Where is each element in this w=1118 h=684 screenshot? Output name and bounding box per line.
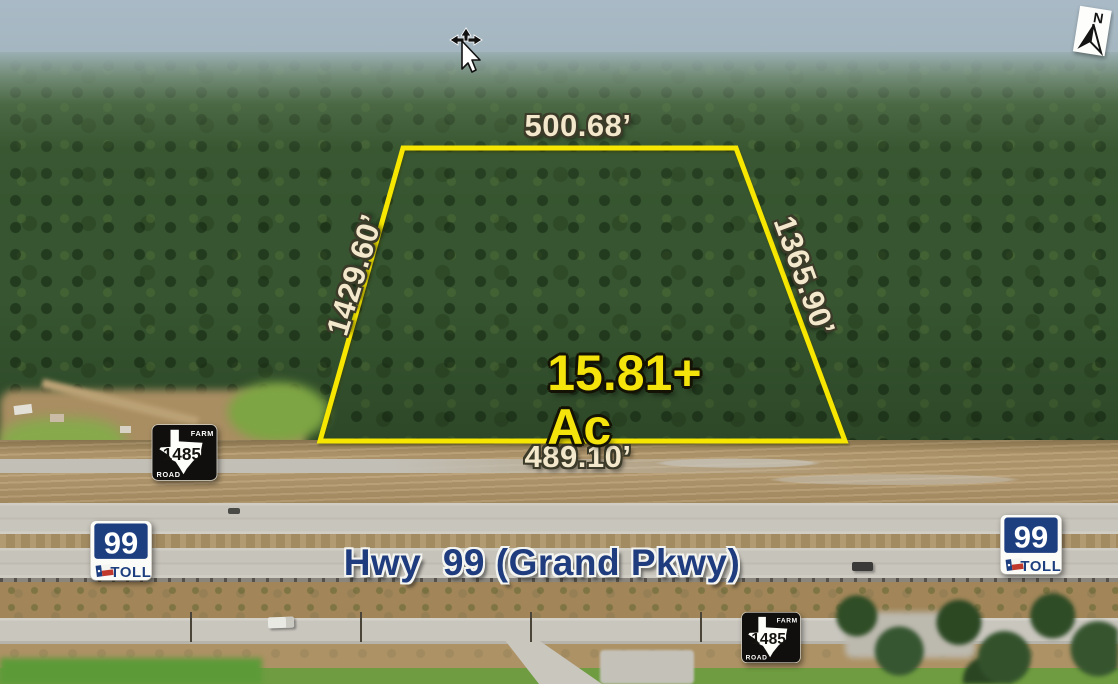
shield-farm-text: FARM xyxy=(191,429,214,438)
north-arrow-icon: N xyxy=(1070,5,1114,61)
dimension-top: 500.68’ xyxy=(525,108,632,144)
move-cursor-icon xyxy=(446,27,486,73)
aerial-property-photo[interactable]: 500.68’ 1429.60’ 1365.90’ 489.10’ 15.81+… xyxy=(0,0,1118,684)
shield-toll-text: TOLL xyxy=(1020,559,1061,575)
shield-farm-text: FARM xyxy=(777,618,798,625)
toll-99-shield: 99 TOLL xyxy=(1000,514,1062,575)
shield-toll-text: TOLL xyxy=(110,565,151,581)
highway-label: Hwy 99 (Grand Pkwy) xyxy=(344,542,741,584)
shield-road-number: 1485 xyxy=(751,631,786,648)
shield-toll-number: 99 xyxy=(1014,519,1048,554)
shield-road-text: ROAD xyxy=(157,470,181,479)
shield-toll-number: 99 xyxy=(104,525,138,560)
toll-99-shield: 99 TOLL xyxy=(90,520,152,581)
acreage-unit: Ac xyxy=(547,400,611,454)
shield-road-text: ROAD xyxy=(746,655,768,662)
fm-1485-shield: FARM 1485 ROAD xyxy=(741,607,801,668)
acreage-label: 15.81+ Ac xyxy=(547,238,603,454)
acreage-value: 15.81+ xyxy=(547,346,701,400)
fm-1485-shield: FARM 1485 ROAD xyxy=(150,424,219,481)
shield-road-number: 1485 xyxy=(163,444,202,464)
